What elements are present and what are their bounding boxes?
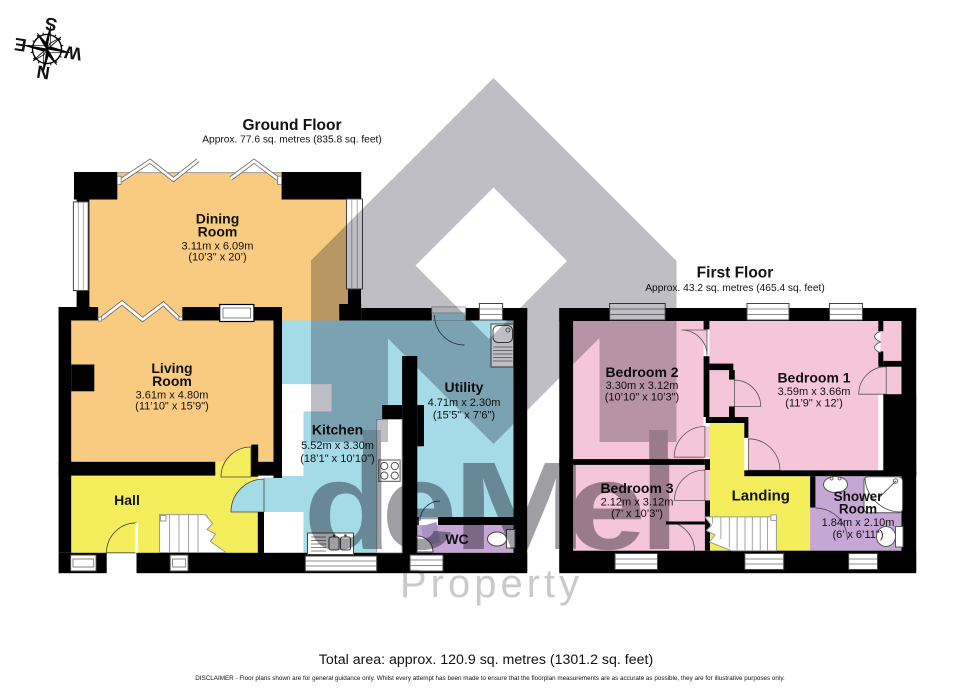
svg-text:Landing: Landing xyxy=(732,488,790,505)
svg-text:e: e xyxy=(382,436,457,576)
svg-text:Room: Room xyxy=(839,502,877,517)
svg-text:(10’3" x 20’): (10’3" x 20’) xyxy=(188,252,246,264)
svg-text:3.59m x 3.66m: 3.59m x 3.66m xyxy=(778,386,851,398)
svg-text:W: W xyxy=(63,42,83,64)
svg-text:Ground Floor: Ground Floor xyxy=(242,117,341,134)
svg-text:Total area: approx. 120.9 sq.: Total area: approx. 120.9 sq. metres (13… xyxy=(319,652,653,668)
svg-text:DISCLAIMER - Floor plans sho: DISCLAIMER - Floor plans shown are for g… xyxy=(195,675,785,682)
svg-text:Approx. 77.6 sq. metres (835.8: Approx. 77.6 sq. metres (835.8 sq. feet) xyxy=(202,135,382,146)
svg-text:First Floor: First Floor xyxy=(697,265,774,282)
svg-text:(11’10" x 15’9"): (11’10" x 15’9") xyxy=(135,401,209,413)
svg-text:(6’ x 6’11"): (6’ x 6’11") xyxy=(833,529,884,541)
svg-text:e: e xyxy=(567,436,645,576)
svg-text:Hall: Hall xyxy=(114,492,140,508)
svg-text:Bedroom 1: Bedroom 1 xyxy=(777,370,850,386)
svg-text:Property: Property xyxy=(400,562,583,606)
svg-text:(11’9" x 12’): (11’9" x 12’) xyxy=(785,398,843,410)
svg-text:1.84m x 2.10m: 1.84m x 2.10m xyxy=(822,517,895,529)
svg-text:Room: Room xyxy=(152,373,192,389)
svg-text:Room: Room xyxy=(198,224,238,240)
